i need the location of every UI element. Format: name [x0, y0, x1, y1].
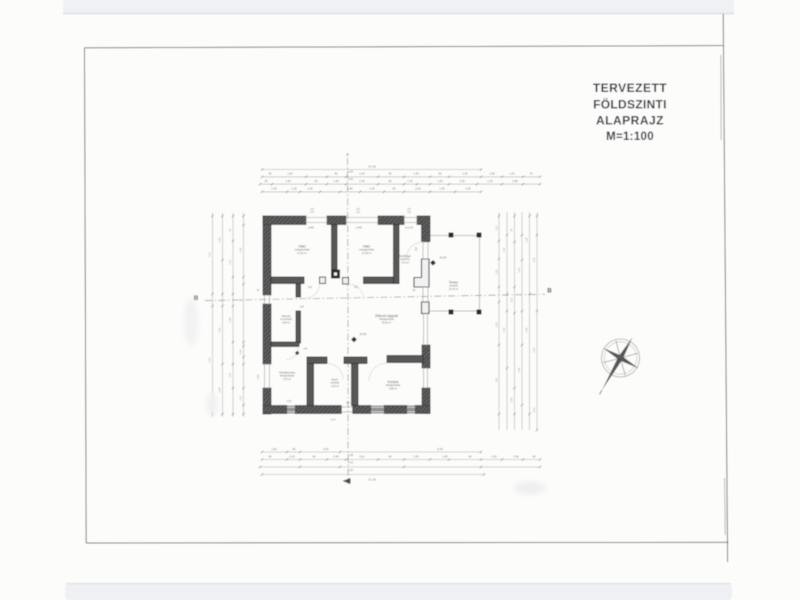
svg-text:105: 105	[308, 286, 313, 289]
svg-text:1,93: 1,93	[287, 172, 293, 176]
svg-text:105: 105	[354, 286, 359, 289]
svg-text:1,10: 1,10	[496, 225, 499, 230]
svg-text:1,87: 1,87	[229, 372, 232, 377]
svg-text:4,40: 4,40	[518, 367, 521, 372]
svg-text:90: 90	[268, 454, 272, 458]
svg-text:2,20 m²: 2,20 m²	[331, 385, 339, 388]
svg-text:4,35: 4,35	[526, 327, 529, 332]
svg-text:Háló: Háló	[363, 244, 370, 248]
svg-text:150: 150	[407, 211, 412, 214]
svg-text:B: B	[194, 295, 199, 302]
svg-text:90: 90	[388, 172, 392, 176]
svg-text:90: 90	[388, 454, 392, 458]
svg-text:1,00: 1,00	[271, 447, 277, 451]
svg-text:A: A	[346, 152, 349, 157]
svg-text:30: 30	[264, 179, 268, 183]
svg-text:4,20: 4,20	[511, 297, 514, 302]
svg-text:+18: +18	[299, 305, 304, 309]
svg-text:3,60: 3,60	[219, 327, 222, 332]
svg-text:±0,00: ±0,00	[360, 332, 367, 336]
svg-text:+18: +18	[303, 347, 308, 351]
svg-text:15,75 m²: 15,75 m²	[449, 288, 459, 291]
svg-text:90: 90	[314, 179, 318, 183]
svg-text:p=85: p=85	[308, 226, 314, 230]
svg-text:1,10: 1,10	[509, 172, 515, 176]
svg-text:Konyha: Konyha	[388, 380, 399, 384]
svg-text:1,20: 1,20	[307, 187, 313, 191]
svg-text:11,38 m²: 11,38 m²	[362, 252, 371, 255]
svg-text:Háló: Háló	[299, 244, 306, 248]
svg-text:1,30: 1,30	[496, 269, 499, 274]
svg-text:2,30: 2,30	[415, 187, 421, 191]
svg-text:90: 90	[268, 172, 272, 176]
svg-text:2,48: 2,48	[219, 387, 222, 392]
svg-text:60: 60	[392, 187, 396, 191]
svg-text:0,38: 0,38	[348, 453, 354, 457]
svg-text:FÖLDSZINTI: FÖLDSZINTI	[593, 97, 667, 112]
svg-text:1,25: 1,25	[291, 187, 297, 191]
svg-text:1,20: 1,20	[462, 172, 468, 176]
svg-text:1,08: 1,08	[533, 347, 536, 352]
svg-text:1,40: 1,40	[285, 179, 291, 183]
svg-text:Közl.: Közl.	[332, 377, 339, 381]
svg-text:1,40: 1,40	[359, 179, 365, 183]
svg-text:5,00: 5,00	[209, 357, 212, 362]
svg-text:2,10: 2,10	[229, 259, 232, 264]
svg-text:p=85: p=85	[356, 226, 362, 230]
svg-text:1,50: 1,50	[257, 374, 260, 379]
svg-text:5,70 m²: 5,70 m²	[283, 378, 291, 381]
svg-text:1,02: 1,02	[240, 395, 243, 400]
svg-text:3,03: 3,03	[533, 407, 536, 412]
svg-text:1,40: 1,40	[503, 247, 506, 252]
svg-text:1,48: 1,48	[229, 317, 232, 322]
svg-text:2,40: 2,40	[333, 454, 339, 458]
svg-text:0,30: 0,30	[348, 170, 354, 174]
svg-text:90: 90	[438, 172, 442, 176]
svg-text:5,05: 5,05	[518, 267, 521, 272]
svg-text:1,40: 1,40	[407, 179, 413, 183]
svg-text:2,40: 2,40	[359, 172, 365, 176]
svg-text:Terasz: Terasz	[449, 280, 459, 284]
svg-text:5,51: 5,51	[323, 447, 329, 451]
svg-text:1,40: 1,40	[413, 172, 419, 176]
svg-text:90: 90	[312, 454, 316, 458]
svg-text:100: 100	[346, 402, 351, 405]
svg-text:6,92: 6,92	[348, 177, 354, 181]
svg-text:TERVEZETT: TERVEZETT	[593, 81, 667, 95]
svg-text:1,93: 1,93	[496, 322, 499, 327]
svg-text:1,30: 1,30	[491, 454, 497, 458]
svg-text:1,90: 1,90	[496, 377, 499, 382]
svg-text:p=1,20: p=1,20	[405, 226, 414, 230]
svg-text:4,30: 4,30	[240, 247, 243, 252]
svg-text:1,20: 1,20	[487, 179, 493, 183]
svg-text:150: 150	[310, 211, 315, 214]
svg-text:1,35: 1,35	[459, 179, 465, 183]
svg-text:3,35: 3,35	[219, 237, 222, 242]
svg-text:3,51: 3,51	[359, 454, 365, 458]
svg-text:2,45: 2,45	[271, 187, 277, 191]
svg-text:9,18: 9,18	[437, 447, 443, 451]
svg-text:1,40: 1,40	[437, 179, 443, 183]
svg-text:12,16 m²: 12,16 m²	[297, 252, 307, 255]
svg-text:90: 90	[388, 179, 392, 183]
svg-text:2,03: 2,03	[289, 454, 295, 458]
svg-text:2,30: 2,30	[465, 187, 471, 191]
svg-text:1,30: 1,30	[413, 454, 419, 458]
svg-text:1,35: 1,35	[533, 257, 536, 262]
svg-text:1,40: 1,40	[369, 187, 375, 191]
svg-text:1,08: 1,08	[526, 237, 529, 242]
svg-text:2,40: 2,40	[240, 349, 243, 354]
svg-text:Szélfogó: Szélfogó	[399, 254, 411, 258]
svg-text:a.60: a.60	[287, 400, 292, 403]
svg-text:2,98: 2,98	[512, 179, 518, 183]
svg-text:9,98 m²: 9,98 m²	[389, 388, 397, 391]
svg-text:Fürdőszoba: Fürdőszoba	[279, 370, 295, 374]
svg-text:1,40: 1,40	[439, 187, 445, 191]
svg-text:0,30: 0,30	[348, 468, 354, 472]
svg-text:17,16: 17,16	[368, 164, 376, 168]
svg-text:2,63: 2,63	[511, 397, 514, 402]
svg-text:3,08 m²: 3,08 m²	[282, 322, 290, 325]
svg-text:60: 60	[292, 447, 296, 451]
svg-text:B: B	[547, 288, 552, 295]
svg-text:110: 110	[414, 246, 418, 251]
svg-text:ALAPRAJZ: ALAPRAJZ	[596, 114, 664, 128]
svg-text:25,50 m²: 25,50 m²	[382, 322, 392, 325]
svg-text:1,50: 1,50	[442, 454, 448, 458]
svg-text:4,70: 4,70	[348, 461, 354, 465]
svg-text:4,35: 4,35	[503, 327, 506, 332]
svg-text:75: 75	[529, 172, 533, 176]
svg-text:M=1:100: M=1:100	[606, 131, 654, 143]
svg-text:±0,00: ±0,00	[440, 256, 447, 260]
svg-text:90: 90	[334, 172, 338, 176]
svg-text:10 9: 10 9	[331, 419, 336, 422]
svg-text:1,50: 1,50	[489, 172, 495, 176]
svg-text:Étkező-nappali: Étkező-nappali	[375, 313, 398, 318]
svg-text:1,80: 1,80	[347, 187, 353, 191]
svg-text:1,40: 1,40	[333, 179, 339, 183]
svg-text:90: 90	[532, 454, 536, 458]
svg-text:7,23: 7,23	[209, 252, 212, 257]
svg-text:90: 90	[468, 454, 472, 458]
svg-text:150: 150	[356, 211, 361, 214]
svg-text:17,16: 17,16	[368, 478, 376, 482]
svg-text:Kamra: Kamra	[282, 314, 291, 318]
svg-text:7,32 m²: 7,32 m²	[401, 262, 409, 265]
svg-text:1,50: 1,50	[513, 454, 519, 458]
